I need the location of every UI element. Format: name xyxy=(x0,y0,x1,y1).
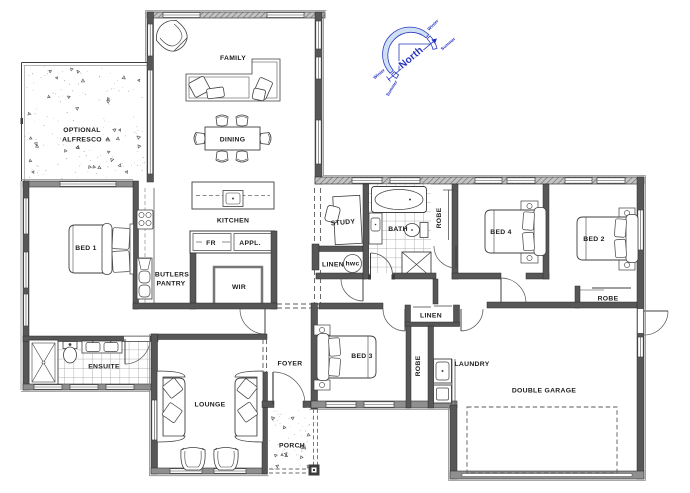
svg-text:BED 1: BED 1 xyxy=(75,245,97,252)
svg-text:PANTRY: PANTRY xyxy=(157,281,186,288)
svg-text:LAUNDRY: LAUNDRY xyxy=(454,361,489,368)
svg-text:ROBE: ROBE xyxy=(415,355,422,376)
svg-text:hwc: hwc xyxy=(345,261,359,268)
svg-text:FR: FR xyxy=(206,240,216,247)
svg-text:PORCH: PORCH xyxy=(279,443,305,450)
svg-text:BED 2: BED 2 xyxy=(583,236,605,243)
svg-text:WIR: WIR xyxy=(232,284,246,291)
svg-text:LOUNGE: LOUNGE xyxy=(195,402,226,409)
svg-text:FAMILY: FAMILY xyxy=(220,55,246,62)
svg-text:APPL.: APPL. xyxy=(239,240,261,247)
svg-text:ROBE: ROBE xyxy=(598,296,619,303)
svg-text:KITCHEN: KITCHEN xyxy=(217,218,249,225)
svg-text:BATH: BATH xyxy=(388,226,408,233)
svg-text:DINING: DINING xyxy=(220,137,246,144)
svg-text:ROBE: ROBE xyxy=(436,207,443,228)
svg-text:OPTIONAL: OPTIONAL xyxy=(63,127,101,134)
svg-text:ALFRESCO: ALFRESCO xyxy=(62,137,102,144)
svg-text:FOYER: FOYER xyxy=(278,361,303,368)
svg-text:LINEN: LINEN xyxy=(322,262,344,269)
svg-text:DOUBLE GARAGE: DOUBLE GARAGE xyxy=(512,388,576,395)
svg-text:BED 3: BED 3 xyxy=(351,353,373,360)
svg-text:BUTLERS: BUTLERS xyxy=(155,272,189,279)
svg-text:ENSUITE: ENSUITE xyxy=(88,364,120,371)
svg-text:LINEN: LINEN xyxy=(420,313,442,320)
svg-text:BED 4: BED 4 xyxy=(490,229,512,236)
